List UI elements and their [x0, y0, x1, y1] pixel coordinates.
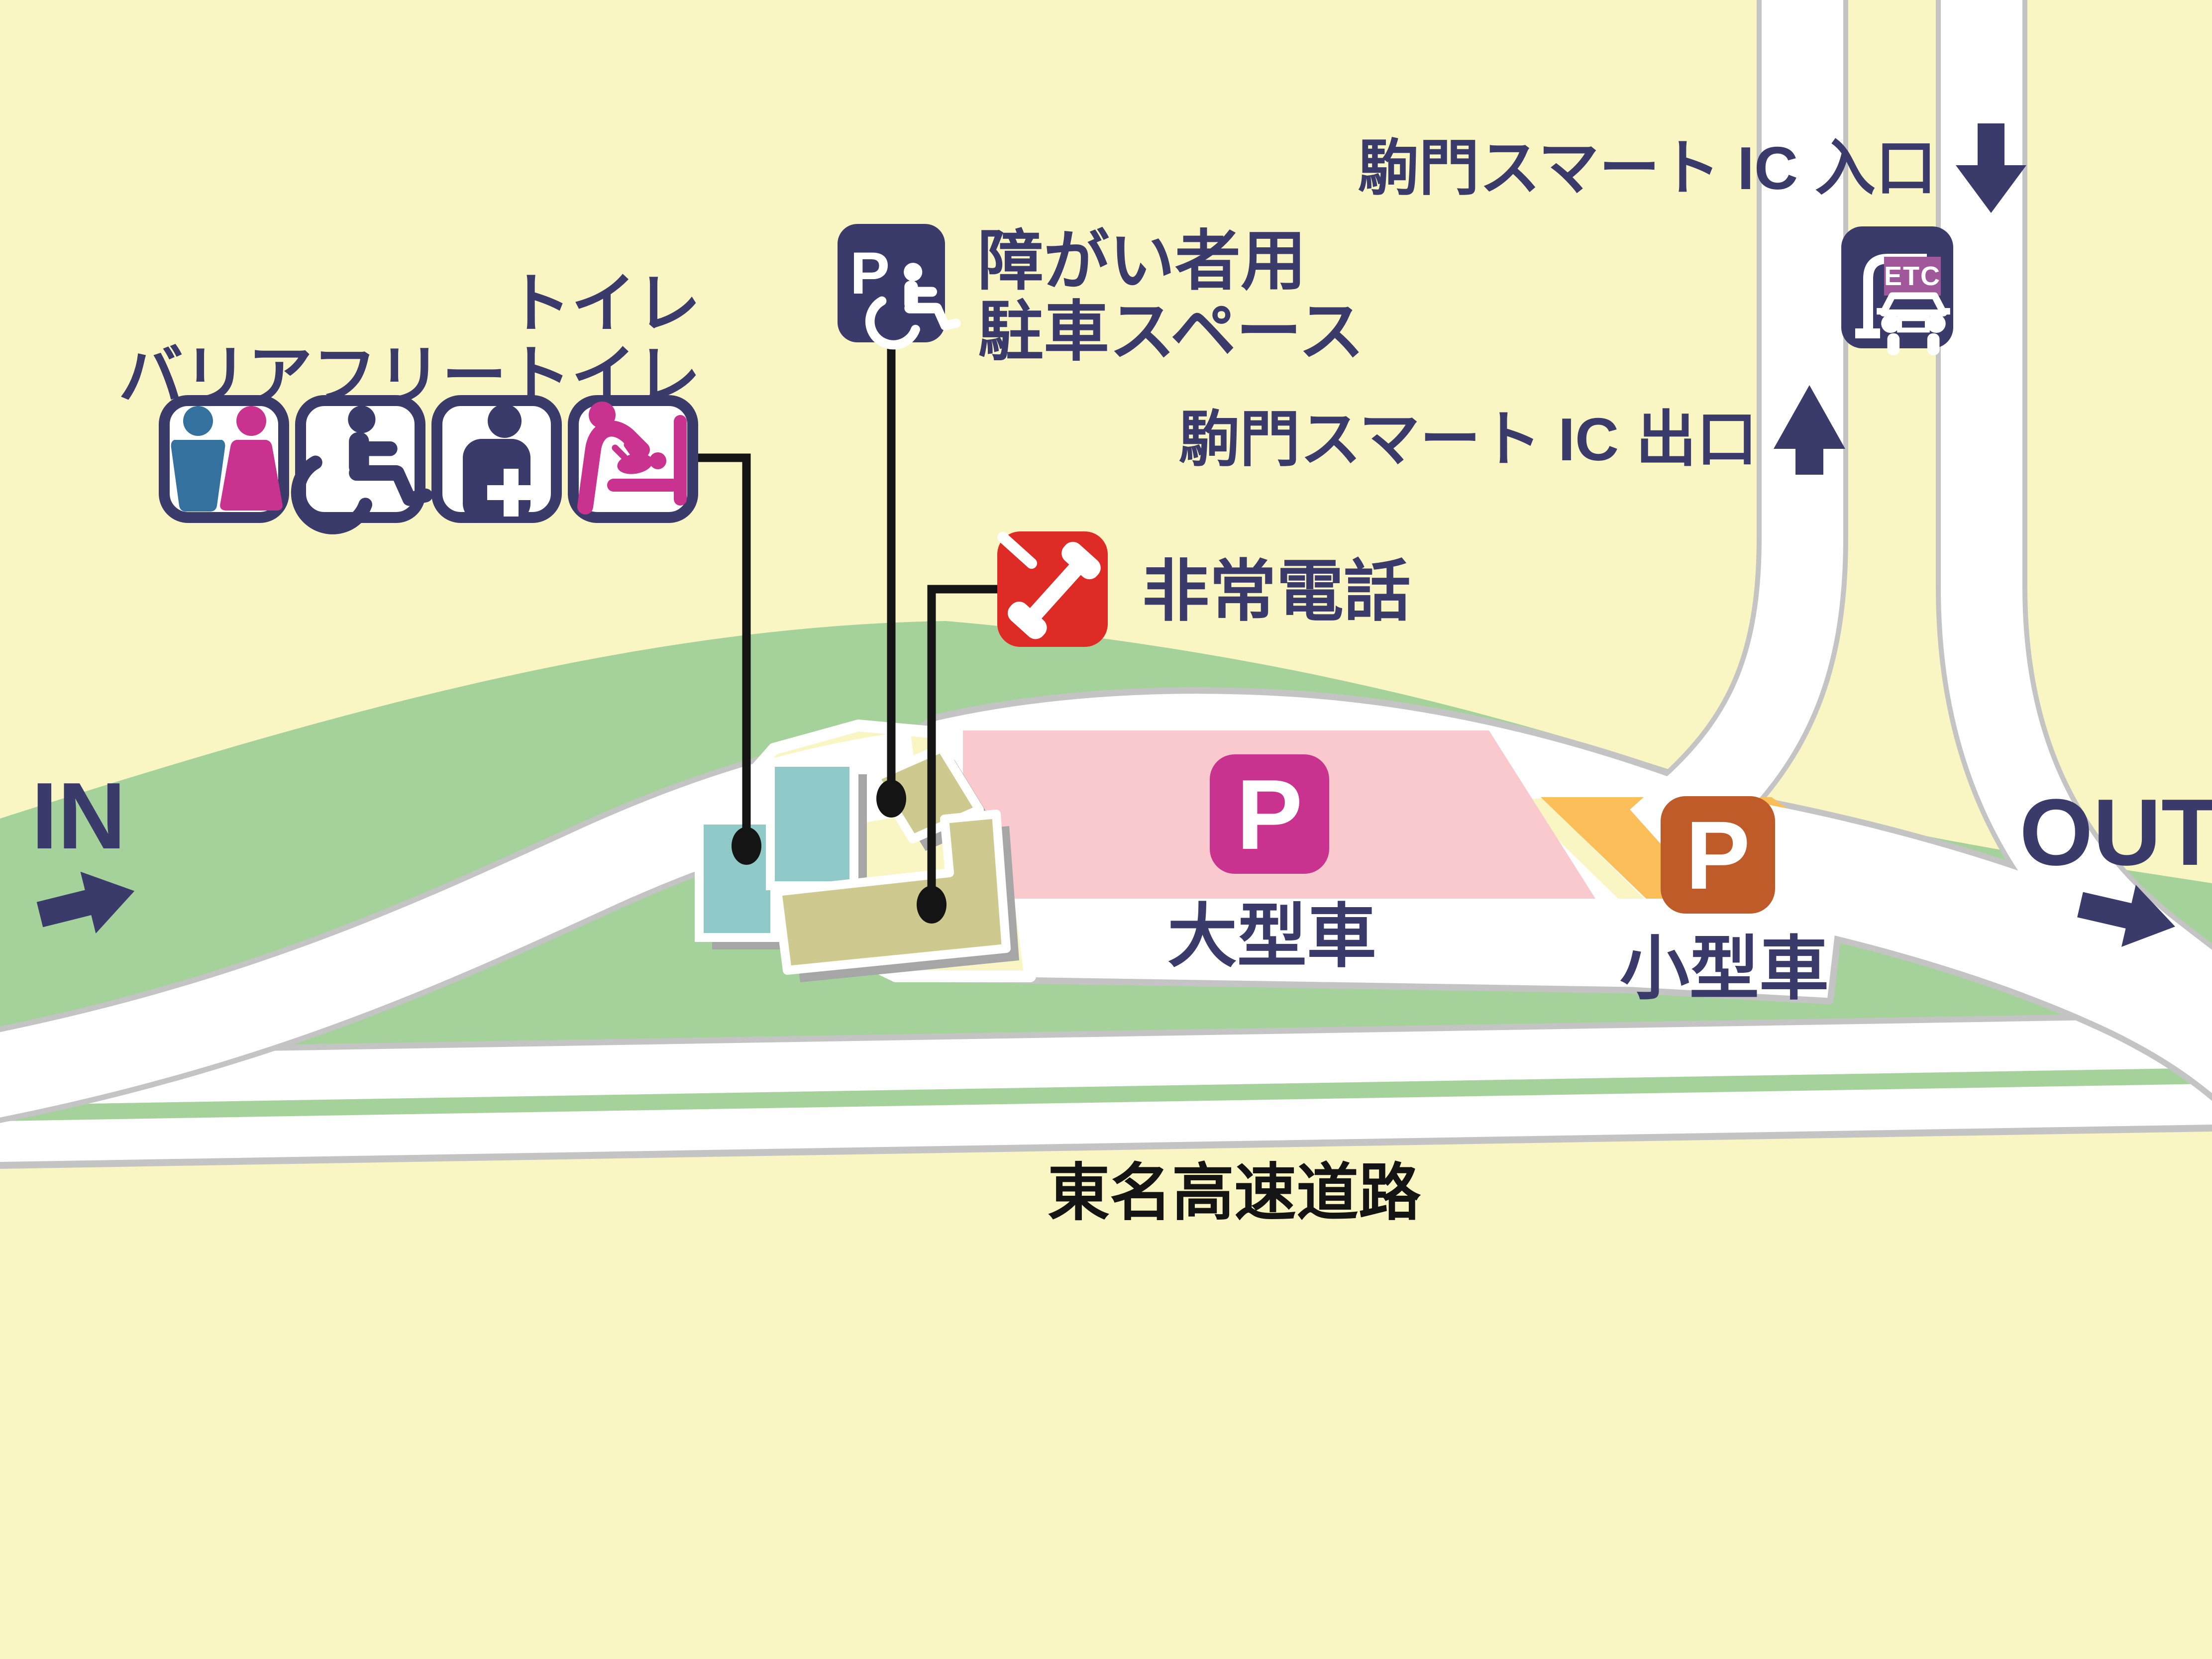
etc-gantry-base: [1855, 328, 1880, 338]
label-large-vehicle: 大型車: [1167, 897, 1376, 975]
emergency-phone-sign: [995, 529, 1108, 647]
accessible-parking-p: P: [850, 240, 890, 307]
accessible-parking-sign: P: [838, 224, 956, 345]
label-highway: 東名高速道路: [1048, 1158, 1421, 1228]
label-disabled-parking-1: 障がい者用: [978, 224, 1306, 298]
label-barrier-free-toilet: バリアフリートイレ: [118, 339, 701, 412]
label-toilet: トイレ: [507, 267, 701, 340]
label-emergency-phone: 非常電話: [1142, 554, 1411, 629]
p-large-label: P: [1236, 759, 1302, 870]
label-out: OUT: [2019, 780, 2212, 885]
etc-sign-label: ETC: [1884, 261, 1941, 291]
label-ic-entrance: 駒門スマート IC 入口: [1358, 134, 1936, 202]
label-ic-exit: 駒門スマート IC 出口: [1179, 406, 1757, 473]
building-toilet-b: [770, 762, 854, 886]
etc-gate-sign: ETC: [1841, 226, 1953, 355]
service-area-map: P ETC P: [0, 0, 2212, 1659]
parking-large-sign: P: [1210, 754, 1329, 874]
p-small-label: P: [1685, 801, 1750, 910]
label-disabled-parking-2: 駐車スペース: [978, 295, 1364, 368]
parking-small-sign: P: [1661, 796, 1775, 914]
label-in: IN: [31, 763, 126, 869]
label-small-vehicle: 小型車: [1620, 930, 1829, 1008]
